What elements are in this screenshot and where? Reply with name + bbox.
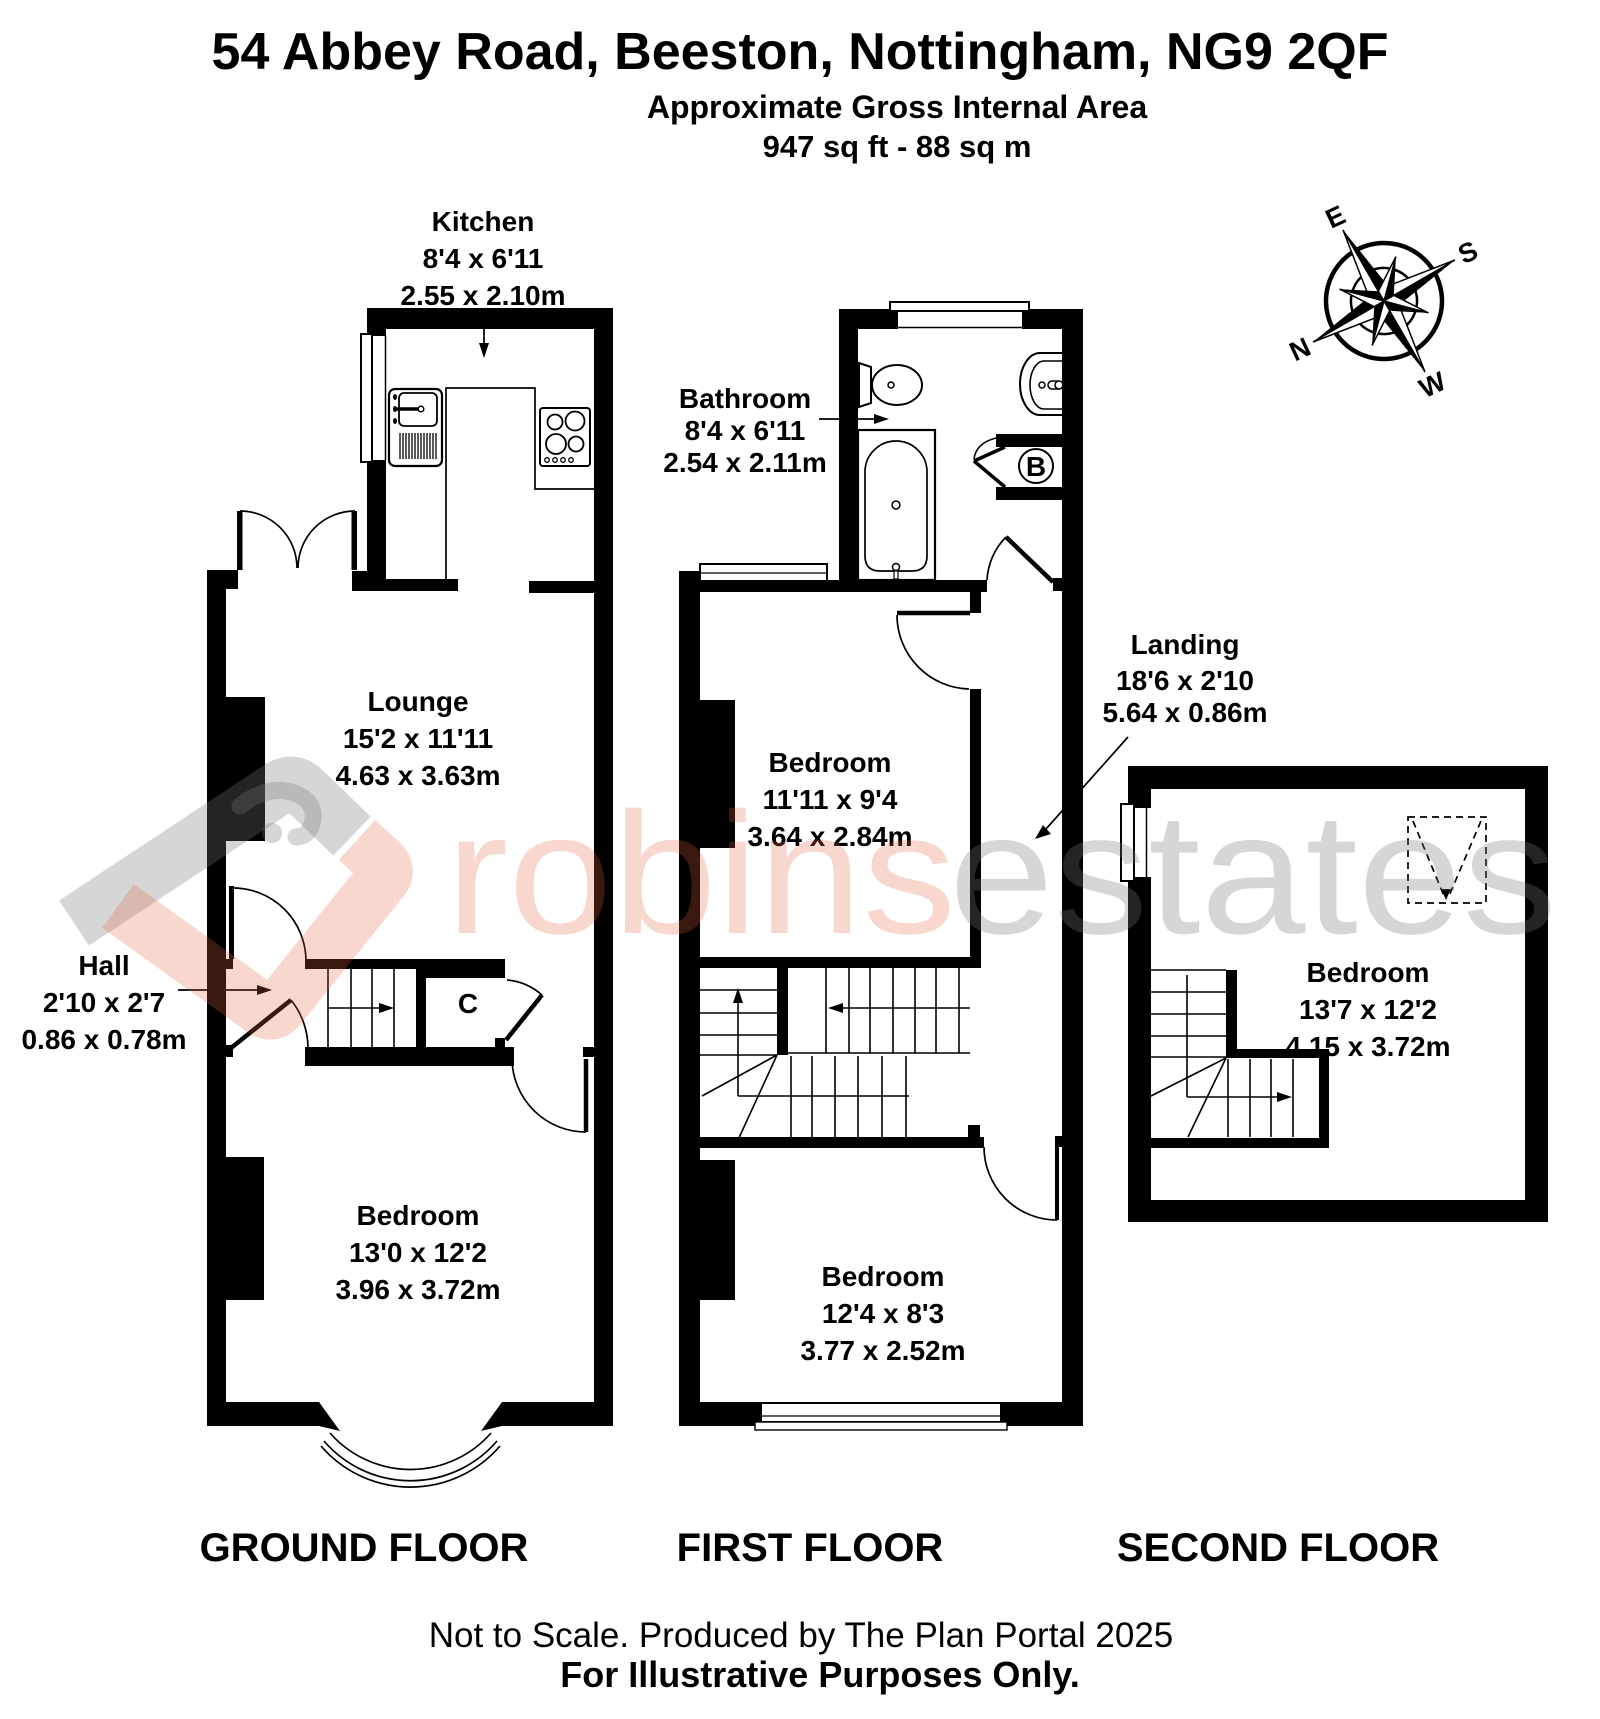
- svg-text:Hall: Hall: [78, 950, 129, 981]
- svg-text:3.77 x 2.52m: 3.77 x 2.52m: [800, 1335, 965, 1366]
- svg-text:Bathroom: Bathroom: [679, 383, 811, 414]
- svg-text:Bedroom: Bedroom: [822, 1261, 945, 1292]
- svg-text:Bedroom: Bedroom: [769, 747, 892, 778]
- svg-text:2.55 x 2.10m: 2.55 x 2.10m: [400, 280, 565, 311]
- svg-text:8'4 x 6'11: 8'4 x 6'11: [423, 243, 544, 274]
- svg-text:Bedroom: Bedroom: [357, 1200, 480, 1231]
- svg-text:13'0 x 12'2: 13'0 x 12'2: [349, 1237, 487, 1268]
- svg-text:2'10 x 2'7: 2'10 x 2'7: [43, 987, 165, 1018]
- svg-text:5.64 x 0.86m: 5.64 x 0.86m: [1102, 697, 1267, 728]
- svg-text:GROUND FLOOR: GROUND FLOOR: [200, 1526, 529, 1570]
- svg-text:2.54 x 2.11m: 2.54 x 2.11m: [663, 447, 826, 478]
- svg-text:0.86 x 0.78m: 0.86 x 0.78m: [21, 1024, 186, 1055]
- svg-text:Lounge: Lounge: [367, 686, 468, 717]
- svg-text:4.15 x 3.72m: 4.15 x 3.72m: [1285, 1031, 1450, 1062]
- svg-text:Approximate Gross Internal Are: Approximate Gross Internal Area: [647, 89, 1148, 125]
- svg-text:SECOND FLOOR: SECOND FLOOR: [1117, 1526, 1439, 1570]
- svg-text:For Illustrative Purposes Only: For Illustrative Purposes Only.: [560, 1654, 1079, 1695]
- svg-text:54 Abbey Road, Beeston, Nottin: 54 Abbey Road, Beeston, Nottingham, NG9 …: [212, 23, 1389, 81]
- svg-text:FIRST FLOOR: FIRST FLOOR: [677, 1526, 944, 1570]
- svg-text:18'6 x 2'10: 18'6 x 2'10: [1116, 665, 1254, 696]
- svg-text:C: C: [458, 988, 478, 1019]
- svg-text:Not to Scale. Produced by The: Not to Scale. Produced by The Plan Porta…: [429, 1616, 1174, 1655]
- svg-text:12'4 x 8'3: 12'4 x 8'3: [822, 1298, 944, 1329]
- svg-text:15'2 x 11'11: 15'2 x 11'11: [343, 723, 493, 754]
- svg-text:8'4 x 6'11: 8'4 x 6'11: [685, 415, 806, 446]
- svg-text:Kitchen: Kitchen: [432, 206, 535, 237]
- svg-text:3.96 x 3.72m: 3.96 x 3.72m: [335, 1274, 500, 1305]
- svg-text:B: B: [1026, 451, 1046, 482]
- svg-text:947 sq ft - 88 sq m: 947 sq ft - 88 sq m: [763, 129, 1032, 164]
- svg-text:estates: estates: [949, 776, 1557, 970]
- svg-text:robins: robins: [446, 776, 956, 970]
- svg-text:13'7 x 12'2: 13'7 x 12'2: [1299, 994, 1437, 1025]
- svg-text:Landing: Landing: [1131, 629, 1240, 660]
